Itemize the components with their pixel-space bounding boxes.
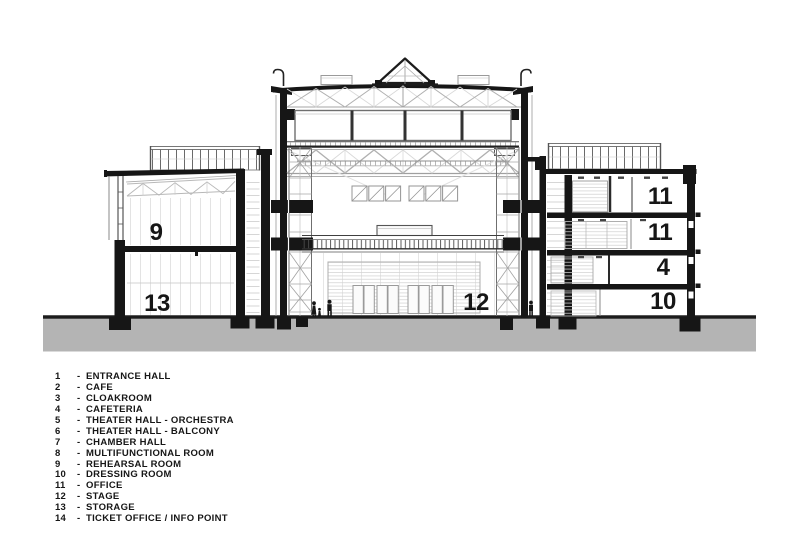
building-section-drawing bbox=[0, 0, 800, 362]
legend-item: 8-MULTIFUNCTIONAL ROOM bbox=[55, 448, 375, 459]
legend-item-name: STORAGE bbox=[86, 502, 135, 513]
legend: 1-ENTRANCE HALL 2-CAFE 3-CLOAKROOM 4-CAF… bbox=[55, 371, 375, 524]
room-number-label-12: 12 bbox=[463, 291, 489, 315]
legend-item-separator: - bbox=[77, 426, 86, 437]
legend-item-name: CAFETERIA bbox=[86, 404, 143, 415]
legend-item-number: 6 bbox=[55, 426, 77, 437]
legend-item-number: 3 bbox=[55, 393, 77, 404]
legend-item-name: ENTRANCE HALL bbox=[86, 371, 171, 382]
legend-item-name: TICKET OFFICE / INFO POINT bbox=[86, 513, 228, 524]
gable-skylight bbox=[372, 59, 438, 85]
legend-item-name: CAFE bbox=[86, 382, 113, 393]
gutter-hook-left bbox=[274, 70, 284, 87]
legend-item: 1-ENTRANCE HALL bbox=[55, 371, 375, 382]
cafeteria-floor bbox=[551, 256, 609, 285]
fly-tower bbox=[271, 59, 541, 319]
right-wing bbox=[540, 143, 701, 318]
legend-item-separator: - bbox=[77, 448, 86, 459]
legend-item-number: 1 bbox=[55, 371, 77, 382]
legend-item-name: THEATER HALL - ORCHESTRA bbox=[86, 415, 234, 426]
room-number-label-11-lower: 11 bbox=[648, 221, 672, 245]
legend-item-name: STAGE bbox=[86, 491, 120, 502]
ground bbox=[43, 315, 756, 351]
legend-item: 14-TICKET OFFICE / INFO POINT bbox=[55, 513, 375, 524]
legend-item-separator: - bbox=[77, 404, 86, 415]
room-number-label-4: 4 bbox=[657, 256, 670, 280]
legend-item: 7-CHAMBER HALL bbox=[55, 437, 375, 448]
room-number-label-10: 10 bbox=[650, 290, 676, 314]
clerestory-windows bbox=[287, 109, 519, 156]
legend-item-name: CHAMBER HALL bbox=[86, 437, 166, 448]
architectural-section-page: 9 13 12 11 11 4 10 1-ENTRANCE HALL 2-CAF… bbox=[0, 0, 800, 558]
legend-item-number: 2 bbox=[55, 382, 77, 393]
legend-item: 10-DRESSING ROOM bbox=[55, 469, 375, 480]
room-number-label-11-upper: 11 bbox=[648, 185, 672, 209]
legend-item: 3-CLOAKROOM bbox=[55, 393, 375, 404]
legend-item-separator: - bbox=[77, 459, 86, 470]
legend-item-number: 9 bbox=[55, 459, 77, 470]
louver-panels bbox=[352, 186, 458, 201]
legend-item-separator: - bbox=[77, 469, 86, 480]
legend-item-separator: - bbox=[77, 382, 86, 393]
legend-item-separator: - bbox=[77, 513, 86, 524]
legend-item: 2-CAFE bbox=[55, 382, 375, 393]
room-number-label-9: 9 bbox=[150, 221, 163, 245]
catwalk bbox=[302, 226, 504, 253]
legend-item-separator: - bbox=[77, 393, 86, 404]
legend-item-separator: - bbox=[77, 371, 86, 382]
legend-item-number: 13 bbox=[55, 502, 77, 513]
legend-item-number: 14 bbox=[55, 513, 77, 524]
legend-item-number: 4 bbox=[55, 404, 77, 415]
gutter-hook-right bbox=[521, 70, 531, 87]
legend-item: 11-OFFICE bbox=[55, 480, 375, 491]
legend-item-number: 5 bbox=[55, 415, 77, 426]
left-wing bbox=[104, 146, 272, 318]
legend-item-separator: - bbox=[77, 415, 86, 426]
legend-item: 5-THEATER HALL - ORCHESTRA bbox=[55, 415, 375, 426]
legend-item-separator: - bbox=[77, 480, 86, 491]
legend-item-name: MULTIFUNCTIONAL ROOM bbox=[86, 448, 214, 459]
legend-item: 13-STORAGE bbox=[55, 502, 375, 513]
legend-item-number: 10 bbox=[55, 469, 77, 480]
office-floor-lower bbox=[565, 219, 646, 249]
legend-item-name: OFFICE bbox=[86, 480, 123, 491]
legend-item-name: DRESSING ROOM bbox=[86, 469, 172, 480]
legend-item-separator: - bbox=[77, 502, 86, 513]
legend-item-separator: - bbox=[77, 491, 86, 502]
legend-item-number: 11 bbox=[55, 480, 77, 491]
legend-item: 12-STAGE bbox=[55, 491, 375, 502]
room-number-label-13: 13 bbox=[144, 292, 170, 316]
dressing-room-floor bbox=[551, 290, 600, 317]
legend-item-number: 12 bbox=[55, 491, 77, 502]
legend-item-separator: - bbox=[77, 437, 86, 448]
legend-item: 9-REHEARSAL ROOM bbox=[55, 459, 375, 470]
main-truss bbox=[287, 150, 519, 201]
legend-item: 6-THEATER HALL - BALCONY bbox=[55, 426, 375, 437]
legend-item-name: REHEARSAL ROOM bbox=[86, 459, 181, 470]
legend-item-name: CLOAKROOM bbox=[86, 393, 152, 404]
legend-item-name: THEATER HALL - BALCONY bbox=[86, 426, 220, 437]
legend-item-number: 7 bbox=[55, 437, 77, 448]
fly-gallery-left bbox=[289, 147, 312, 316]
legend-item-number: 8 bbox=[55, 448, 77, 459]
legend-item: 4-CAFETERIA bbox=[55, 404, 375, 415]
